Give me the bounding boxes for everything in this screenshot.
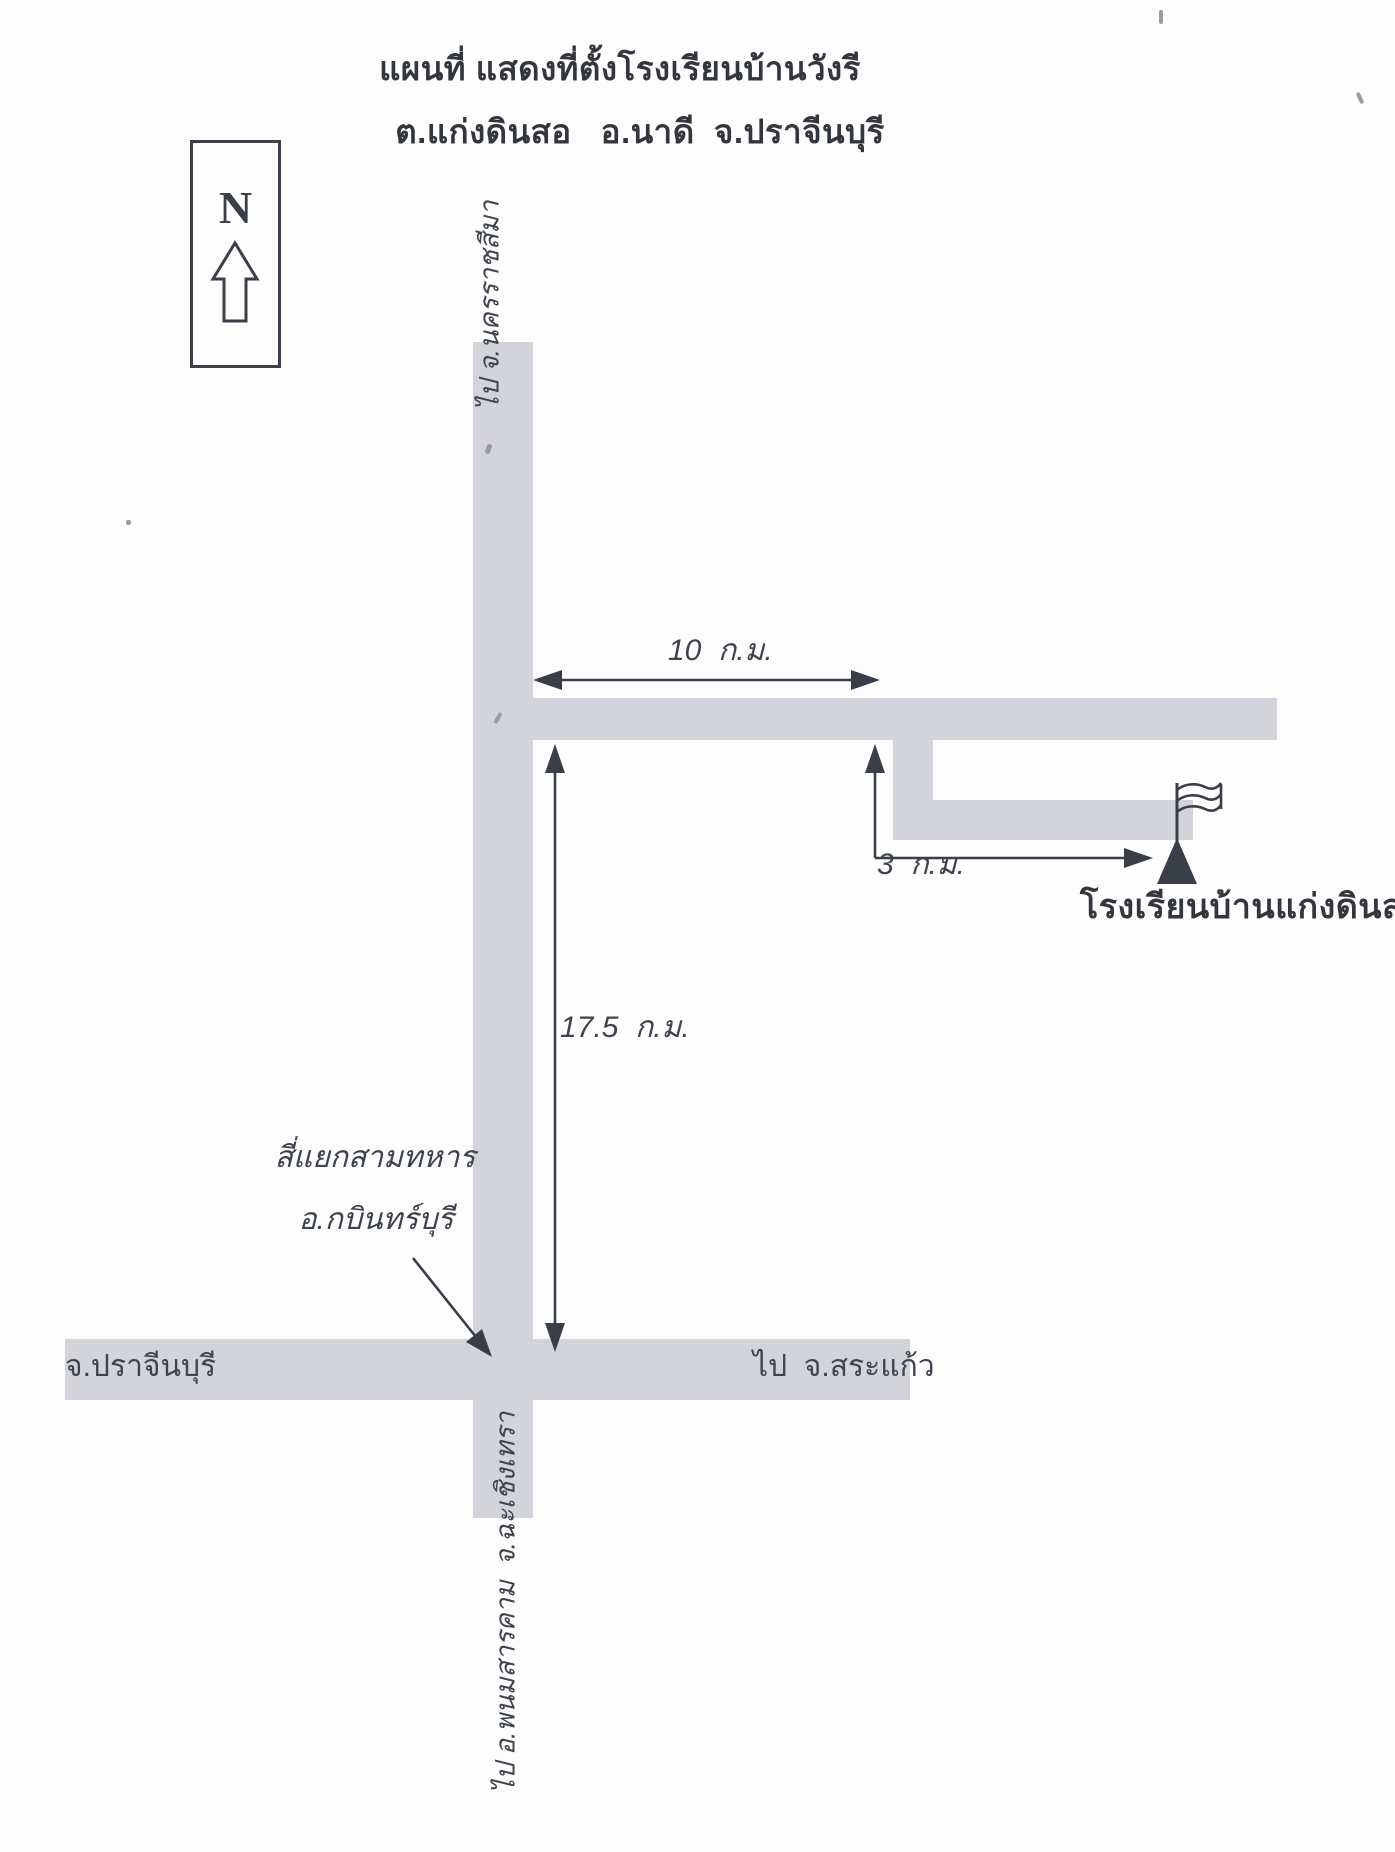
junction-pointer-arrow <box>413 1258 492 1357</box>
map-graphics-layer <box>0 0 1395 1852</box>
junction-label-line1: สี่แยกสามทหาร <box>255 1143 495 1173</box>
scan-speck <box>126 520 131 525</box>
road-label-prachinburi: จ.ปราจีนบุรี <box>65 1352 216 1382</box>
road-label-to-nakhon-ratchasima: ไป จ.นครราชสีมา <box>477 186 504 426</box>
distance-arrow-17-5km <box>545 744 565 1352</box>
flag-on-triangle-icon <box>1157 783 1221 884</box>
school-name-label: โรงเรียนบ้านแก่งดินสอ <box>1080 890 1395 924</box>
road-label-to-sa-kaew: ไป จ.สระแก้ว <box>753 1352 935 1382</box>
distance-label-17-5km: 17.5 ก.ม. <box>560 1013 690 1043</box>
road-label-to-phanom-sarakham: ไป อ.พนมสารคาม จ.ฉะเชิงเทรา <box>493 1434 520 1794</box>
school-triangle-marker <box>1157 838 1197 884</box>
junction-label-line2: อ.กบินทร์บุรี <box>256 1205 496 1235</box>
distance-arrow-10km <box>533 670 880 690</box>
distance-label-10km: 10 ก.ม. <box>668 636 773 666</box>
distance-label-3km: 3 ก.ม. <box>877 850 965 880</box>
scanned-map-page: แผนที่ แสดงที่ตั้งโรงเรียนบ้านวังรี ต.แก… <box>0 0 1395 1852</box>
scan-speck <box>1159 10 1163 24</box>
